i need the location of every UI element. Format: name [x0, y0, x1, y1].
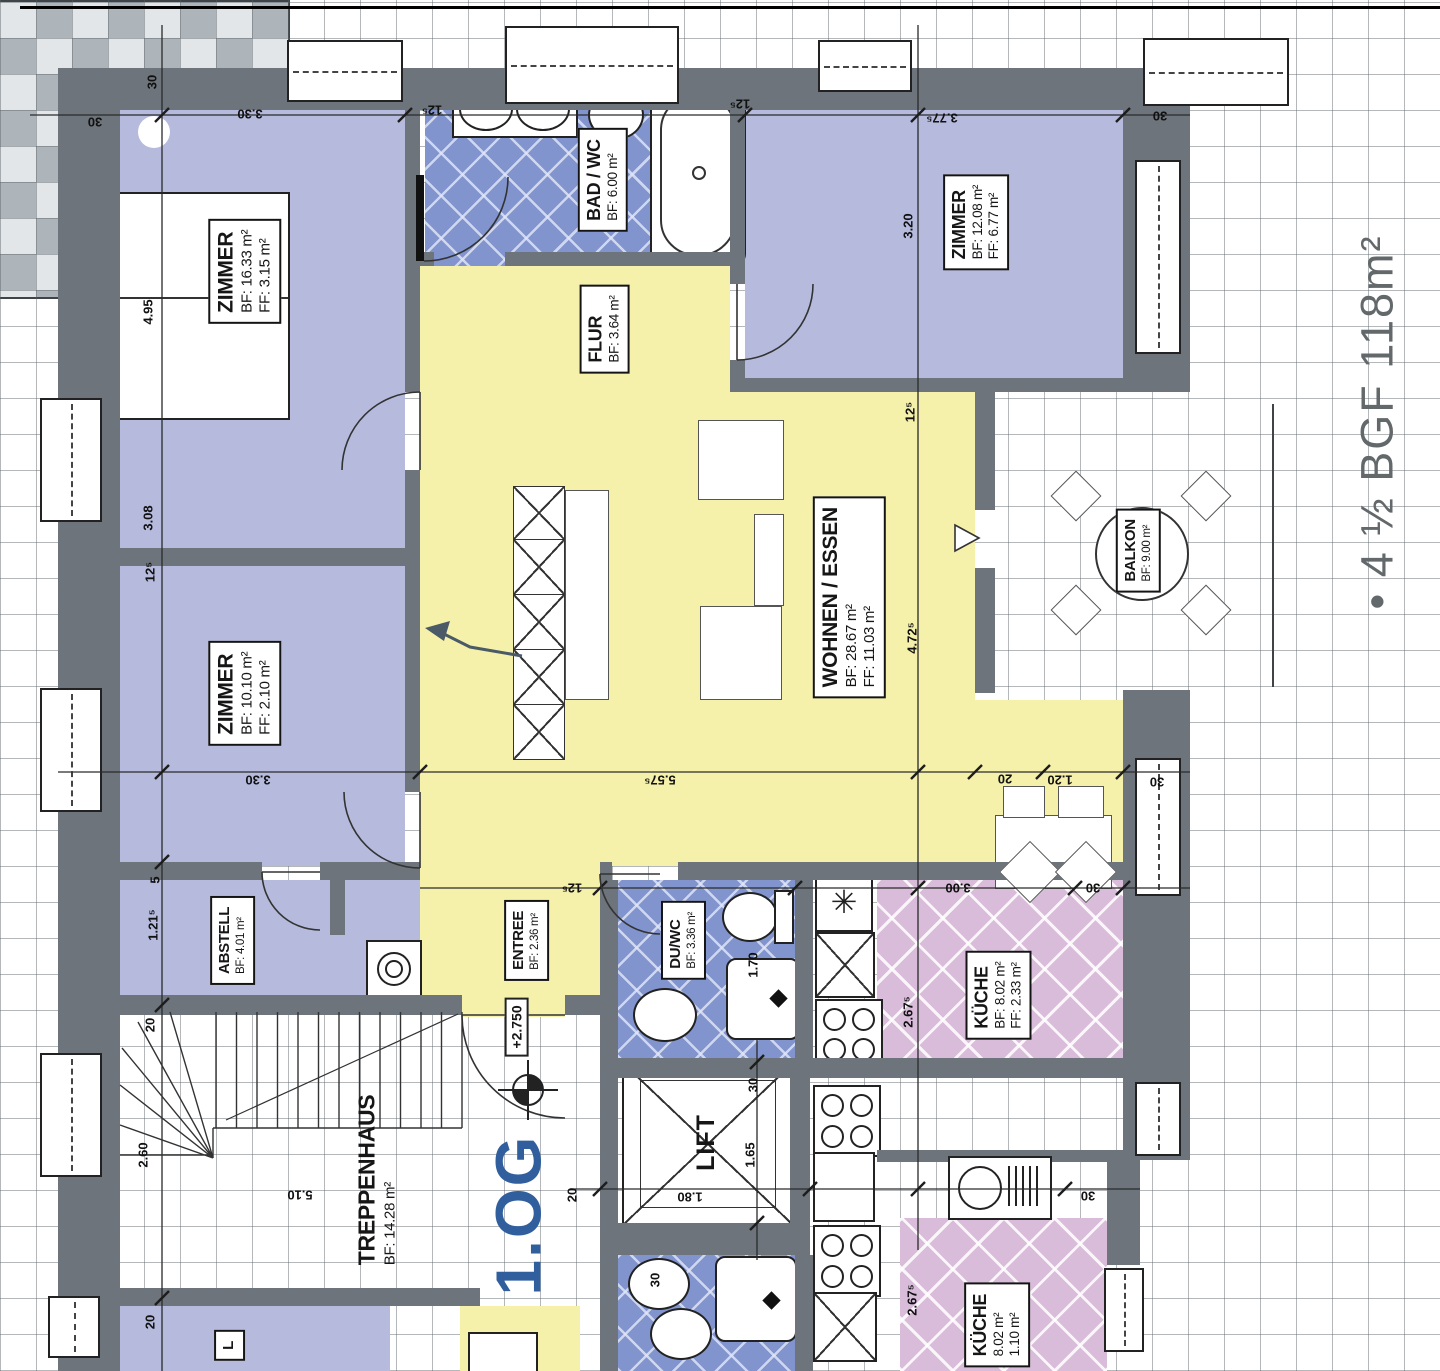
room-bf: BF: 28.67 m²	[844, 507, 860, 687]
wardrobe-cell	[513, 486, 565, 540]
stove-burner	[850, 1125, 873, 1148]
room-label-zimmer-w: ZIMMER BF: 10.10 m² FF: 2.10 m²	[197, 625, 293, 761]
sofa	[698, 420, 784, 500]
room-bf: BF: 3.36 m²	[685, 912, 697, 969]
floor-plan-scan: ✳	[0, 0, 1440, 1371]
wall-zimmer-nw-right-b	[405, 470, 420, 792]
window-top-3	[818, 40, 912, 92]
wardrobe-cell	[513, 705, 565, 760]
window-glass-line	[1158, 764, 1160, 890]
window-top-1	[287, 40, 403, 102]
bad-door-leaf	[416, 175, 424, 261]
wall-balcony-stub-top	[975, 392, 995, 510]
floor-level-text: 1.OG	[481, 1134, 555, 1295]
room-label-abstell: ABSTELL BF: 4.01 m²	[200, 878, 266, 1002]
room-bf: BF: 10.10 m²	[240, 651, 256, 734]
room-name: KÜCHE	[973, 961, 992, 1028]
wall-flur-right-b	[730, 360, 745, 392]
wall-lower-right-pier	[1107, 1160, 1140, 1265]
room-name: ZIMMER	[216, 651, 238, 734]
floor-level-label: 1.OG	[472, 1102, 564, 1327]
room-label-du-wc: DU/WC BF: 3.36 m²	[650, 878, 716, 1002]
kitchen-hood: ✳	[815, 872, 873, 932]
level-elevation: +2.750	[497, 990, 537, 1064]
room-name: ZIMMER	[950, 185, 969, 259]
stove-burner	[823, 1008, 846, 1031]
room-label-zimmer-nw: ZIMMER BF: 16.33 m² FF: 3.15 m²	[197, 203, 293, 339]
stove-burner	[850, 1265, 873, 1288]
wardrobe-cell	[513, 595, 565, 650]
wall-lower-band-b	[320, 862, 420, 880]
room-label-treppenhaus: TREPPENHAUS BF: 14.28 m²	[338, 1085, 414, 1275]
room-ff: FF: 3.15 m²	[258, 229, 274, 312]
room-bf: 8.02 m²	[992, 1294, 1006, 1357]
window-glass-line	[71, 1059, 73, 1171]
wall-zimmer-ne-bottom	[745, 378, 1123, 392]
room-name: ZIMMER	[216, 229, 238, 312]
coffee-table	[754, 514, 784, 606]
wall-lift-bottom	[600, 1223, 810, 1255]
sink-drainer	[1008, 1166, 1042, 1206]
room-label-bad-wc: BAD / WC BF: 6.00 m²	[565, 122, 641, 238]
room-name: WOHNEN / ESSEN	[820, 507, 842, 687]
room-bf: BF: 14.28 m²	[382, 1095, 398, 1266]
shower-lower	[715, 1256, 797, 1342]
label-box-partial	[468, 1332, 538, 1371]
window-glass-line	[1158, 166, 1160, 348]
dining-chair	[1003, 786, 1045, 818]
wardrobe	[513, 486, 565, 760]
room-label-lower-left-partial: L	[195, 1310, 263, 1371]
window-glass-line	[74, 1302, 76, 1352]
wall-bad-bottom-b	[505, 252, 745, 266]
wall-zimmer-divider	[120, 548, 405, 566]
stove-burner	[821, 1265, 844, 1288]
shower-drain	[762, 1291, 780, 1309]
window-top-4	[1143, 38, 1289, 106]
wall-kueche-bottom	[600, 1058, 1123, 1078]
elevation-value: +2.750	[505, 997, 529, 1056]
balcony-railing	[1272, 404, 1274, 687]
wall-treppenhaus-top-b	[565, 995, 618, 1015]
sink-bowl	[958, 1166, 1002, 1210]
dining-chair	[1058, 786, 1104, 818]
window-glass-line	[511, 65, 673, 67]
room-label-kueche: KÜCHE BF: 8.02 m² FF: 2.33 m²	[955, 930, 1043, 1060]
scan-border-line	[20, 6, 1440, 9]
wall-duwc-lower-right	[795, 1255, 813, 1371]
stove-burner	[821, 1094, 844, 1117]
window-left-4	[48, 1296, 100, 1358]
window-left-1	[40, 398, 102, 522]
room-bf: BF: 6.00 m²	[606, 139, 620, 221]
room-name: LIFT	[691, 1114, 720, 1171]
apartment-note: • 4 ½ BGF 118m²	[1322, 122, 1434, 722]
stove-burner	[850, 1094, 873, 1117]
room-ff: 1.10 m²	[1008, 1294, 1022, 1357]
window-right-dining	[1135, 758, 1181, 896]
room-name: BALKON	[1123, 519, 1139, 581]
kitchen-sink-lower	[948, 1156, 1052, 1220]
room-ff: FF: 6.77 m²	[987, 185, 1001, 259]
window-right-low	[1135, 1082, 1181, 1156]
room-name: TREPPENHAUS	[354, 1095, 378, 1266]
washing-machine-drum-inner	[385, 960, 403, 978]
room-name: ABSTELL	[218, 906, 234, 973]
shower	[726, 958, 800, 1040]
toilet-duwc-tank	[774, 890, 794, 944]
room-bf: BF: 4.01 m²	[235, 906, 247, 973]
room-ff: FF: 2.33 m²	[1010, 961, 1024, 1028]
window-glass-line	[824, 66, 906, 68]
room-ff: FF: 11.03 m²	[862, 507, 878, 687]
window-glass-line	[1149, 72, 1283, 74]
toilet-duwc-lower	[650, 1308, 712, 1360]
room-bf: BF: 3.64 m²	[608, 295, 622, 362]
sideboard	[565, 490, 609, 700]
room-label-kueche-lower: KÜCHE 8.02 m² 1.10 m²	[953, 1262, 1041, 1371]
room-label-flur: FLUR BF: 3.64 m²	[570, 268, 640, 390]
washbasin-duwc-lower	[628, 1258, 690, 1310]
room-bf: BF: 16.33 m²	[240, 229, 256, 312]
room-bf: BF: 8.02 m²	[994, 961, 1008, 1028]
room-bf: BF: 12.08 m²	[971, 185, 985, 259]
window-left-2	[40, 688, 102, 812]
kitchen-oven	[815, 932, 875, 998]
window-left-3	[40, 1053, 102, 1177]
window-right-zimmer	[1135, 160, 1181, 354]
armchair	[700, 606, 782, 700]
room-name: L	[221, 1341, 237, 1350]
wall-bottom-left	[80, 1288, 480, 1306]
room-name: KÜCHE	[971, 1294, 990, 1357]
wardrobe-cell	[513, 540, 565, 595]
shower-drain	[769, 989, 787, 1007]
window-glass-line	[1158, 1088, 1160, 1150]
window-glass-line	[71, 694, 73, 806]
window-top-2	[505, 26, 679, 104]
room-label-balkon: BALKON BF: 9.00 m²	[1106, 494, 1170, 606]
kitchen-stove-lower-b	[813, 1225, 881, 1297]
stove-burner	[821, 1125, 844, 1148]
kitchen-counter-lower	[813, 1152, 875, 1222]
window-right-bottom	[1104, 1268, 1144, 1352]
room-label-lift: LIFT	[676, 1087, 736, 1197]
kitchen-stove-lower-a	[813, 1085, 881, 1157]
wall-lower-band-c	[600, 862, 612, 880]
window-glass-line	[293, 71, 397, 73]
room-label-entree: ENTREE BF: 2.36 m²	[494, 878, 560, 1002]
bathtub-drain	[692, 166, 706, 180]
room-name: BAD / WC	[585, 139, 604, 221]
room-bf: BF: 9.00 m²	[1140, 519, 1152, 581]
room-label-wohnen-essen: WOHNEN / ESSEN BF: 28.67 m² FF: 11.03 m²	[803, 442, 895, 752]
room-bf: BF: 2.36 m²	[529, 910, 541, 969]
window-glass-line	[71, 404, 73, 516]
stove-burner	[852, 1008, 875, 1031]
ceiling-lamp	[138, 116, 170, 148]
washing-machine	[366, 940, 422, 998]
apartment-note-text: • 4 ½ BGF 118m²	[1352, 234, 1404, 609]
toilet-duwc	[722, 892, 778, 942]
wall-duwc-kueche	[795, 880, 813, 1058]
room-ff: FF: 2.10 m²	[258, 651, 274, 734]
stove-burner	[821, 1234, 844, 1257]
wall-core-left	[600, 880, 618, 1371]
room-label-zimmer-ne: ZIMMER BF: 12.08 m² FF: 6.77 m²	[932, 158, 1020, 286]
room-name: FLUR	[587, 295, 606, 362]
wall-lift-right	[790, 1078, 810, 1223]
kitchen-dishwasher-lower	[813, 1292, 877, 1362]
wall-balcony-stub-bottom	[975, 568, 995, 693]
wall-abstell-divider	[330, 880, 345, 935]
room-name: ENTREE	[512, 910, 528, 969]
stove-burner	[850, 1234, 873, 1257]
wardrobe-cell	[513, 650, 565, 705]
window-glass-line	[1124, 1274, 1126, 1346]
room-name: DU/WC	[668, 912, 684, 969]
